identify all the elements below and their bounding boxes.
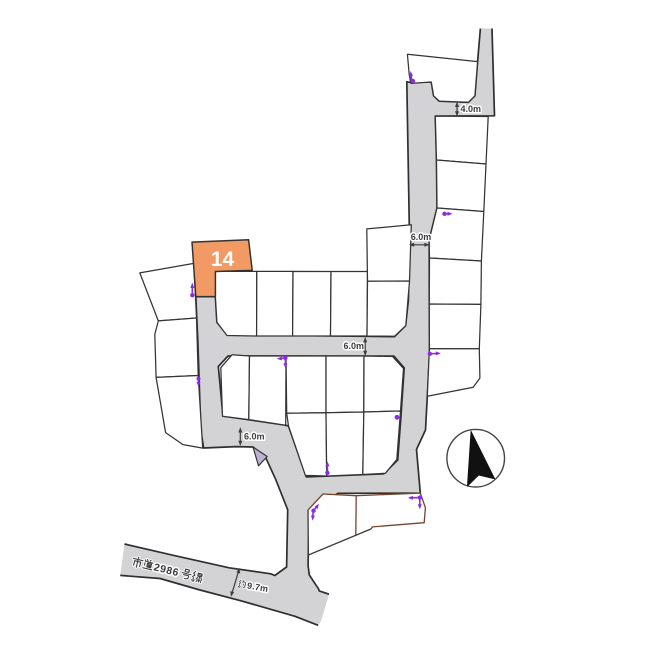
svg-text:6.0m: 6.0m (411, 232, 432, 242)
svg-text:6.0m: 6.0m (244, 432, 265, 442)
svg-text:6.0m: 6.0m (343, 341, 364, 351)
svg-text:4.0m: 4.0m (461, 104, 482, 114)
svg-text:14: 14 (211, 248, 235, 271)
